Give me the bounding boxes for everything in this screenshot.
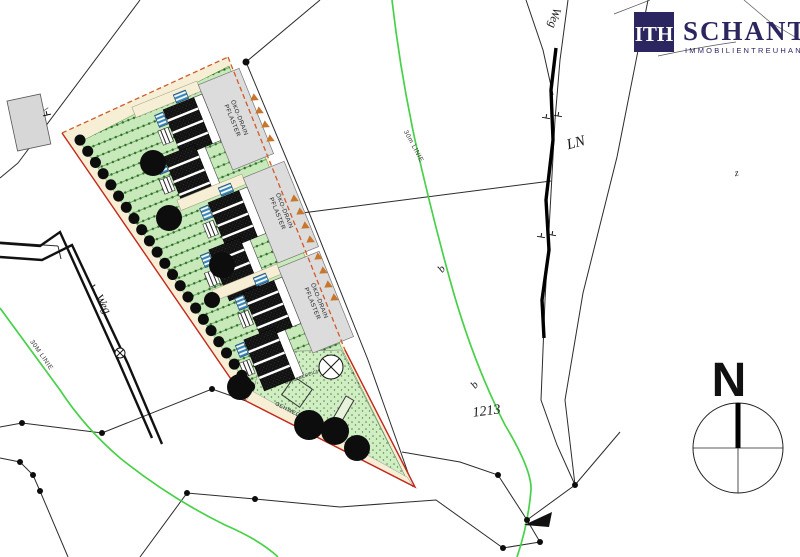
tree: [156, 205, 182, 231]
tree: [227, 374, 253, 400]
tree: [294, 410, 324, 440]
logo: ITH SCHANTL IMMOBILIENTREUHAND: [634, 12, 800, 55]
planted-tree-symbol: [319, 355, 343, 379]
logo-monogram: ITH: [635, 22, 674, 46]
circle-cross-symbol: [115, 348, 125, 358]
tree: [321, 417, 349, 445]
logo-subtitle: IMMOBILIENTREUHAND: [685, 46, 800, 55]
tree: [204, 292, 220, 308]
north-label: N: [712, 354, 747, 407]
tree: [209, 252, 235, 278]
tree: [344, 435, 370, 461]
site-plan: ÖKO-DRAINPFLASTER: [0, 0, 800, 557]
site-plan-page: ÖKO-DRAINPFLASTER: [0, 0, 800, 557]
tree: [140, 150, 166, 176]
logo-name: SCHANTL: [683, 16, 800, 46]
